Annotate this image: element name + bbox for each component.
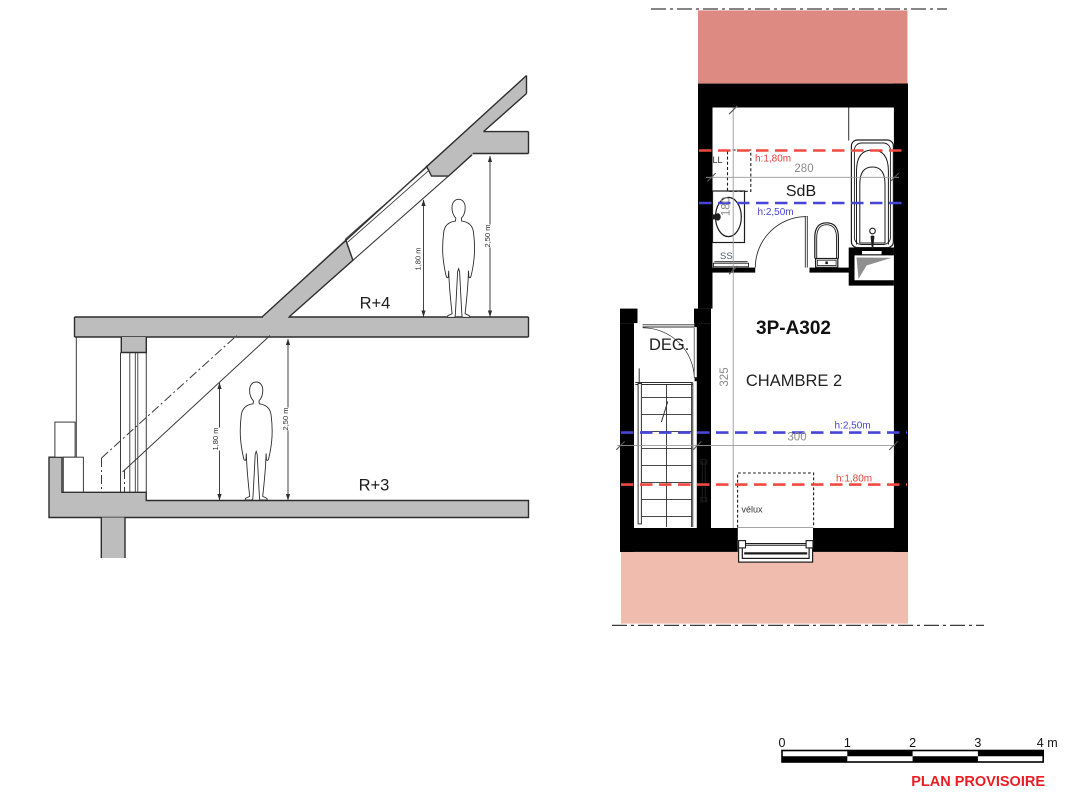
svg-text:4 m: 4 m xyxy=(1037,736,1058,750)
svg-text:DEG.: DEG. xyxy=(649,336,689,354)
svg-text:R+4: R+4 xyxy=(360,295,391,313)
svg-text:1,80 m: 1,80 m xyxy=(414,248,423,271)
svg-text:R+3: R+3 xyxy=(359,477,390,495)
svg-text:1,80 m: 1,80 m xyxy=(211,428,220,451)
svg-text:h:2,50m: h:2,50m xyxy=(758,207,794,218)
svg-text:h:1,80m: h:1,80m xyxy=(836,474,872,485)
svg-text:SS: SS xyxy=(720,251,733,262)
svg-text:PLAN PROVISOIRE: PLAN PROVISOIRE xyxy=(911,774,1045,790)
svg-text:325: 325 xyxy=(719,367,731,386)
svg-text:2,50 m: 2,50 m xyxy=(281,408,290,431)
svg-text:180: 180 xyxy=(721,197,733,216)
svg-text:h:1,80m: h:1,80m xyxy=(755,154,791,165)
svg-text:vélux: vélux xyxy=(742,505,764,515)
svg-text:SdB: SdB xyxy=(786,183,816,200)
svg-text:3P-A302: 3P-A302 xyxy=(756,318,831,339)
svg-text:h:2,50m: h:2,50m xyxy=(835,421,871,432)
svg-text:LL: LL xyxy=(713,155,723,165)
svg-text:CHAMBRE 2: CHAMBRE 2 xyxy=(746,372,842,390)
svg-text:3: 3 xyxy=(974,736,981,750)
svg-text:0: 0 xyxy=(779,736,786,750)
svg-text:2,50 m: 2,50 m xyxy=(483,225,492,248)
svg-text:300: 300 xyxy=(787,432,806,444)
svg-text:1: 1 xyxy=(844,736,851,750)
svg-text:280: 280 xyxy=(794,163,813,175)
svg-text:2: 2 xyxy=(909,736,916,750)
